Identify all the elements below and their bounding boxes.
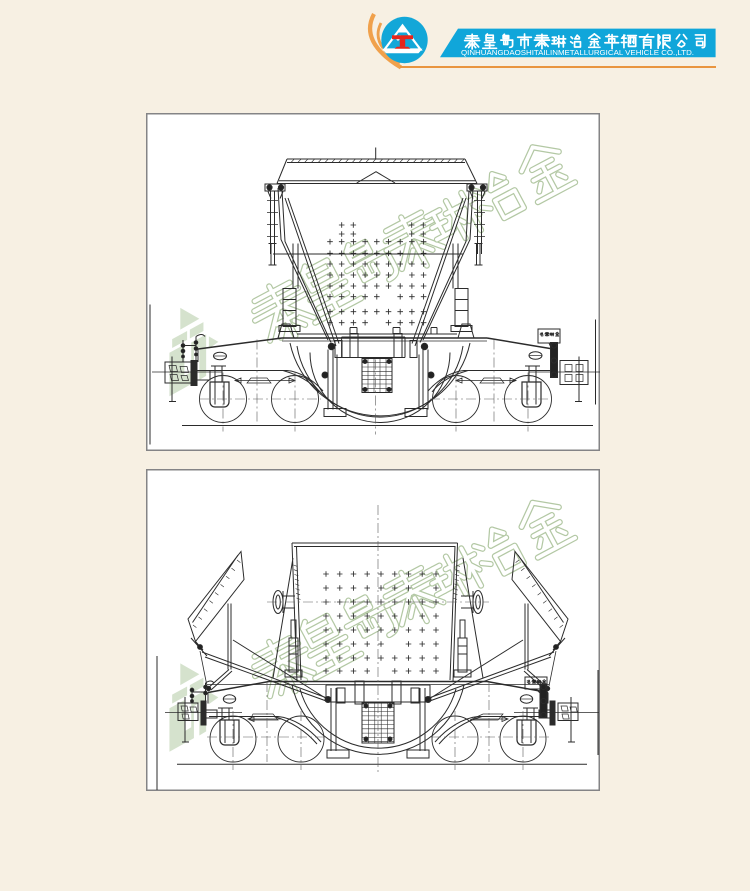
svg-text:QINHUANGDAOSHITAILINMETALLURGI: QINHUANGDAOSHITAILINMETALLURGICAL VEHICL… xyxy=(461,48,694,57)
